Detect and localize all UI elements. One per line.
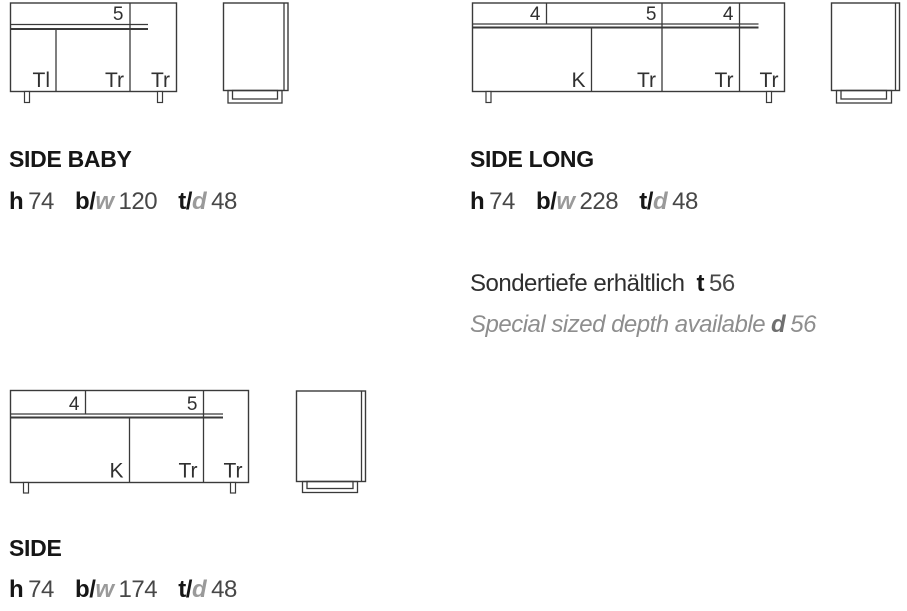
cabinet-leg xyxy=(25,92,30,103)
product-title-side-baby: SIDE BABY xyxy=(9,147,132,171)
dim-key-d: d xyxy=(653,188,667,215)
special-depth-note-en: Special sized depth availabled56 xyxy=(470,312,816,337)
dim-key-t: t/ xyxy=(178,576,192,603)
compartment-label: 5 xyxy=(113,4,124,25)
note-value-d: 56 xyxy=(790,311,816,338)
note-text-en: Special sized depth available xyxy=(470,311,765,338)
compartment-label: 5 xyxy=(187,394,198,415)
cabinet-leg xyxy=(486,92,491,103)
side-long-front-view: 4 5 4 K Tr Tr Tr xyxy=(473,3,785,103)
dim-value-h: 74 xyxy=(489,188,515,215)
dim-key-d: d xyxy=(192,188,206,215)
dim-key-b: b/ xyxy=(536,188,556,215)
cabinet-leg xyxy=(231,483,236,494)
plinth-inner xyxy=(307,482,353,489)
dimension-depth: t/d48 xyxy=(178,189,237,214)
plinth-outer xyxy=(837,91,892,104)
cabinet-side-outline xyxy=(224,3,289,91)
note-value-t: 56 xyxy=(709,270,735,297)
dim-value-h: 74 xyxy=(28,576,54,603)
dimension-width: b/w120 xyxy=(75,189,157,214)
dim-key-b: b/ xyxy=(75,188,95,215)
dim-value-h: 74 xyxy=(28,188,54,215)
cabinet-outline xyxy=(473,3,785,92)
dimensions-side-baby: h74 b/w120 t/d48 xyxy=(9,189,252,214)
product-title-side-long: SIDE LONG xyxy=(470,147,594,171)
compartment-label: Tr xyxy=(759,69,778,92)
side-long-side-view xyxy=(832,3,900,103)
dimension-depth: t/d48 xyxy=(178,577,237,602)
side-side-view xyxy=(297,391,366,493)
compartment-label: 4 xyxy=(530,4,541,25)
dimension-height: h74 xyxy=(9,189,54,214)
dim-key-t: t/ xyxy=(178,188,192,215)
plinth-outer xyxy=(228,91,282,104)
dim-key-d: d xyxy=(192,576,206,603)
dim-value-d: 48 xyxy=(211,576,237,603)
plinth-outer xyxy=(303,482,358,493)
compartment-label: 4 xyxy=(69,394,80,415)
note-text-de: Sondertiefe erhältlich xyxy=(470,270,684,297)
plinth-inner xyxy=(233,91,278,100)
side-front-view: 4 5 K Tr Tr xyxy=(11,391,249,494)
dim-key-w: w xyxy=(95,188,113,215)
cabinet-leg xyxy=(158,92,163,103)
compartment-label: Tr xyxy=(105,69,124,92)
dim-value-w: 174 xyxy=(119,576,158,603)
side-baby-front-view: 5 Tl Tr Tr xyxy=(11,3,177,103)
compartment-label: K xyxy=(109,460,123,483)
compartment-label: Tr xyxy=(714,69,733,92)
dim-value-w: 228 xyxy=(580,188,619,215)
dimension-depth: t/d48 xyxy=(639,189,698,214)
dimensions-side-long: h74 b/w228 t/d48 xyxy=(470,189,713,214)
product-title-side: SIDE xyxy=(9,536,61,560)
compartment-label: 5 xyxy=(646,4,657,25)
dim-value-d: 48 xyxy=(211,188,237,215)
plinth-inner xyxy=(841,91,887,100)
cabinet-leg xyxy=(767,92,772,103)
special-depth-note-de: Sondertiefe erhältlicht56 xyxy=(470,271,735,296)
dimension-height: h74 xyxy=(470,189,515,214)
dim-key-h: h xyxy=(9,576,23,603)
dimension-width: b/w174 xyxy=(75,577,157,602)
dimensions-side: h74 b/w174 t/d48 xyxy=(9,577,252,602)
side-baby-side-view xyxy=(224,3,289,103)
dimension-height: h74 xyxy=(9,577,54,602)
dim-key-h: h xyxy=(9,188,23,215)
dim-key-h: h xyxy=(470,188,484,215)
note-key-d: d xyxy=(771,311,785,338)
cabinet-leg xyxy=(24,483,29,494)
dim-key-t: t/ xyxy=(639,188,653,215)
dim-value-d: 48 xyxy=(672,188,698,215)
compartment-label: Tr xyxy=(637,69,656,92)
dimension-width: b/w228 xyxy=(536,189,618,214)
dim-key-w: w xyxy=(95,576,113,603)
compartment-label: Tl xyxy=(33,69,51,92)
compartment-label: Tr xyxy=(178,460,197,483)
dim-value-w: 120 xyxy=(119,188,158,215)
dim-key-w: w xyxy=(556,188,574,215)
note-key-t: t xyxy=(696,270,704,297)
compartment-label: K xyxy=(571,69,585,92)
furniture-diagrams: 5 Tl Tr Tr 4 5 4 K Tr Tr Tr xyxy=(0,0,907,611)
compartment-label: Tr xyxy=(151,69,170,92)
dim-key-b: b/ xyxy=(75,576,95,603)
compartment-label: 4 xyxy=(723,4,734,25)
cabinet-side-outline xyxy=(832,3,900,91)
compartment-label: Tr xyxy=(223,460,242,483)
cabinet-side-outline xyxy=(297,391,366,482)
